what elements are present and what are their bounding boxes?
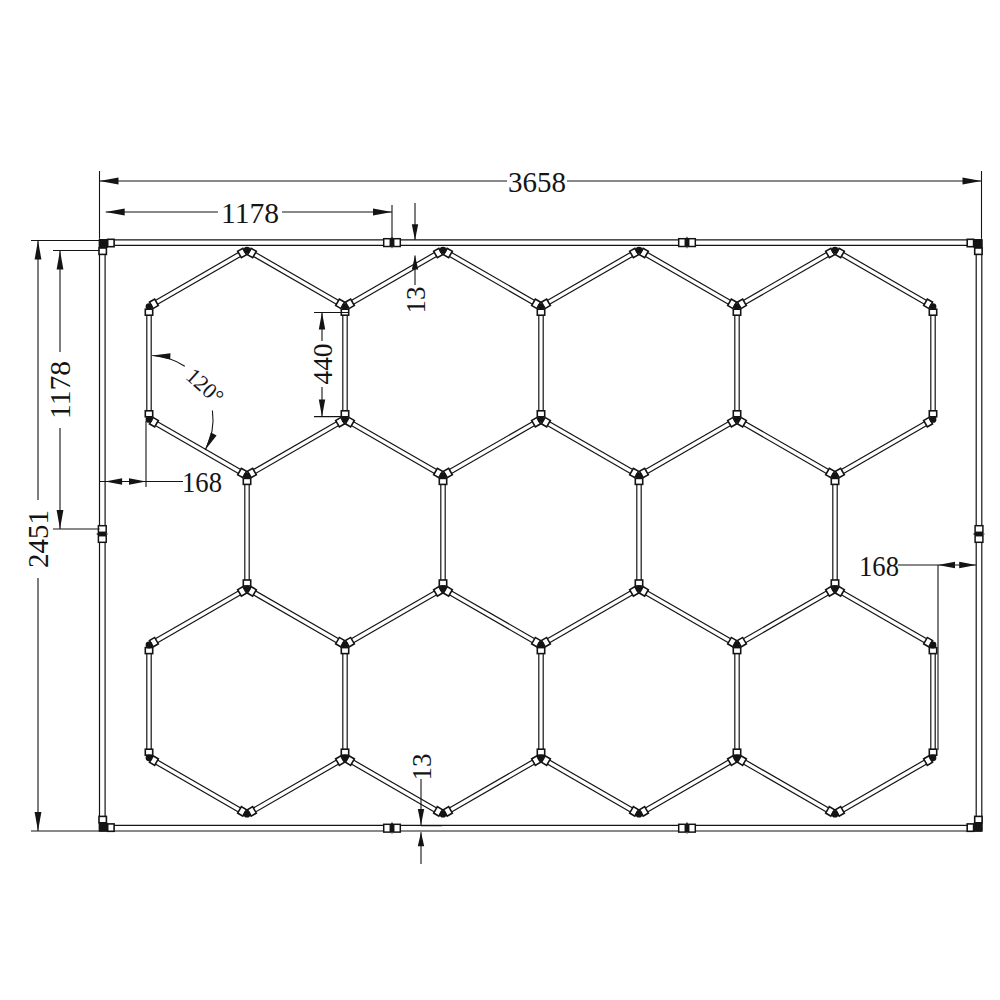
svg-text:1178: 1178 (43, 361, 76, 419)
svg-text:440: 440 (307, 344, 338, 385)
svg-text:13: 13 (400, 287, 431, 314)
svg-text:2451: 2451 (21, 510, 54, 568)
svg-text:168: 168 (859, 549, 899, 582)
svg-text:1178: 1178 (221, 196, 279, 229)
svg-text:168: 168 (182, 465, 222, 498)
svg-text:13: 13 (406, 754, 437, 781)
svg-text:3658: 3658 (508, 165, 566, 198)
